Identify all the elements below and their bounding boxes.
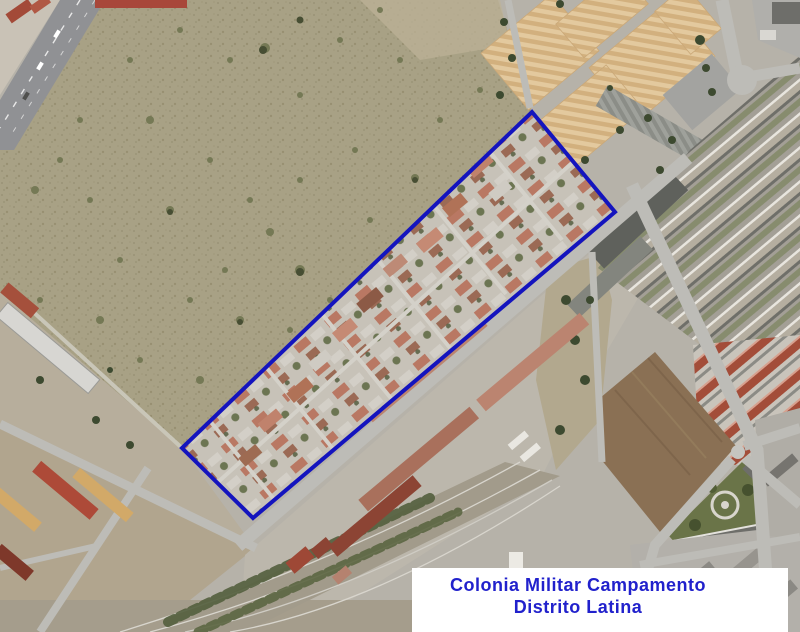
aerial-photo [0,0,800,632]
map-label-line2: Distrito Latina [412,596,744,618]
map-label-box: Colonia Militar Campamento Distrito Lati… [412,568,788,632]
map-label-line1: Colonia Militar Campamento [412,574,744,596]
roundabout [731,445,745,459]
rooftop-strip [95,0,187,8]
aerial-map-screenshot: Colonia Militar Campamento Distrito Lati… [0,0,800,632]
